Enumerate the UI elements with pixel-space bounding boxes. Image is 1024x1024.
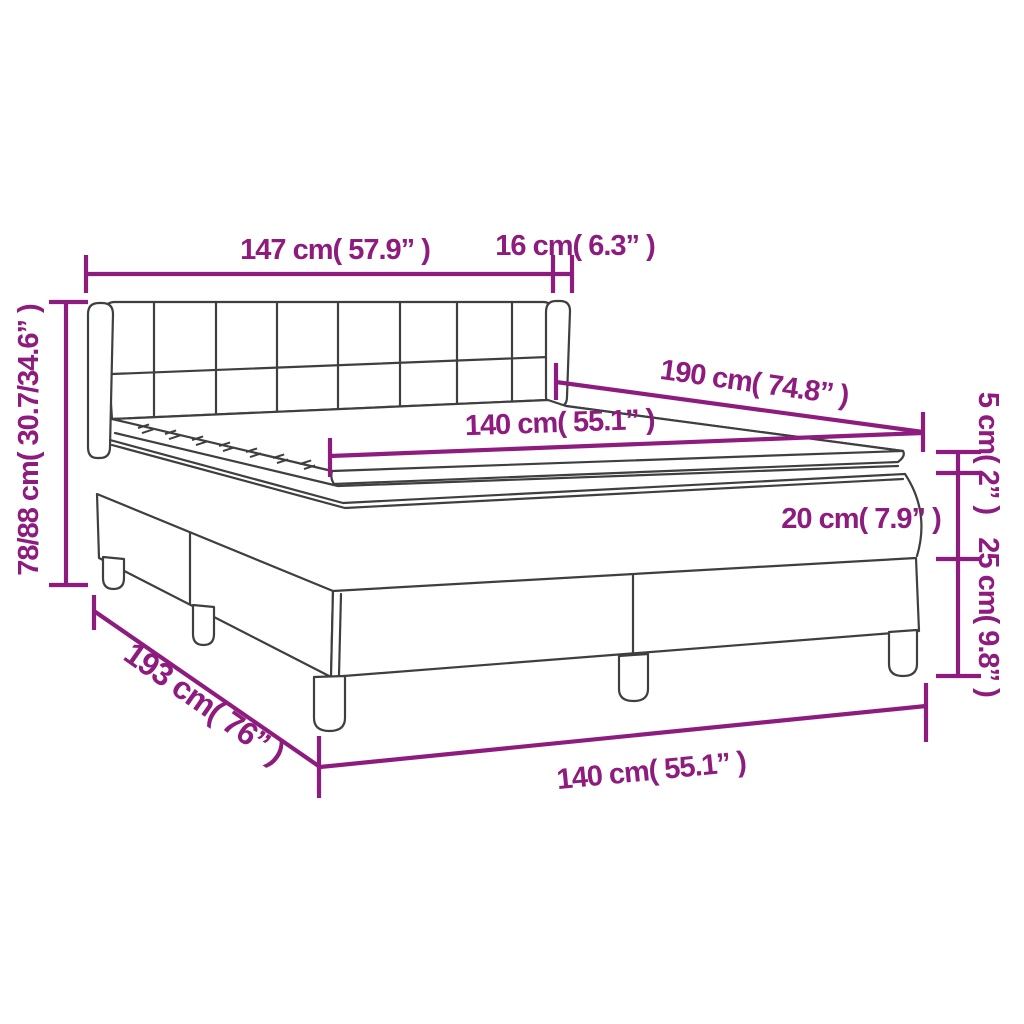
dim-label-overall-height: 78/88 cm( 30.7/34.6” ) bbox=[13, 304, 45, 576]
headboard-left-wing bbox=[88, 303, 113, 458]
dim-label-topper-thickness: 5 cm( 2” ) bbox=[972, 392, 1004, 514]
leg-mid-left bbox=[193, 605, 214, 645]
dimension-diagram: 147 cm( 57.9” ) 16 cm( 6.3” ) 78/88 cm( … bbox=[0, 0, 1024, 1024]
leg-front-middle bbox=[619, 654, 648, 701]
dim-label-mattress-width: 140 cm( 55.1” ) bbox=[464, 404, 655, 443]
dim-headboard-width: 147 cm( 57.9” ) 16 cm( 6.3” ) bbox=[86, 230, 655, 293]
leg-front-right bbox=[889, 630, 917, 676]
dim-label-mattress-thickness: 20 cm( 7.9” ) bbox=[781, 503, 941, 535]
bed-dimension-svg: 147 cm( 57.9” ) 16 cm( 6.3” ) 78/88 cm( … bbox=[0, 0, 1024, 1024]
dim-base-width: 140 cm( 55.1” ) bbox=[319, 683, 926, 798]
dim-label-headboard-width: 147 cm( 57.9” ) bbox=[240, 234, 430, 266]
dim-overall-height: 78/88 cm( 30.7/34.6” ) bbox=[13, 302, 88, 585]
dim-label-base-length: 193 cm( 76” ) bbox=[118, 635, 291, 771]
leg-front-corner bbox=[314, 676, 345, 731]
dim-label-mattress-length: 190 cm( 74.8” ) bbox=[658, 354, 851, 412]
leg-back-left bbox=[103, 557, 124, 589]
dim-label-base-height: 25 cm( 9.8” ) bbox=[972, 537, 1004, 697]
dim-label-base-width: 140 cm( 55.1” ) bbox=[555, 746, 747, 796]
dim-label-headboard-depth: 16 cm( 6.3” ) bbox=[495, 230, 655, 262]
